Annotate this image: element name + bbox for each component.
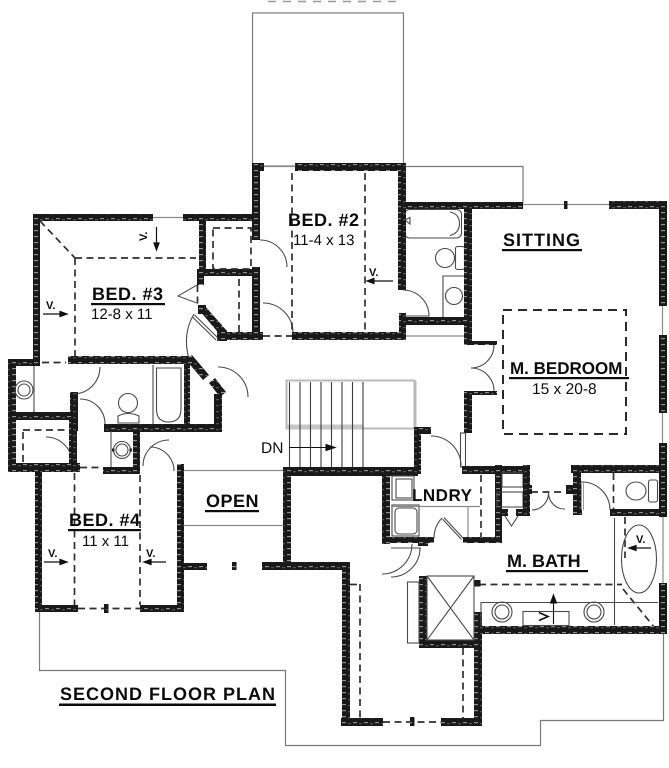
svg-text:V.: V. <box>146 548 155 560</box>
svg-text:11 x 11: 11 x 11 <box>82 533 129 550</box>
svg-text:V.: V. <box>369 267 378 279</box>
svg-text:DN: DN <box>261 440 283 457</box>
svg-text:12-8 x 11: 12-8 x 11 <box>91 306 152 323</box>
svg-text:OPEN: OPEN <box>206 491 259 511</box>
svg-text:LNDRY: LNDRY <box>412 486 473 505</box>
svg-text:11-4 x 13: 11-4 x 13 <box>293 232 354 249</box>
svg-text:SITTING: SITTING <box>503 230 581 250</box>
svg-text:V.: V. <box>48 548 57 560</box>
svg-text:SECOND FLOOR PLAN: SECOND FLOOR PLAN <box>60 684 276 704</box>
svg-text:BED. #4: BED. #4 <box>69 510 141 530</box>
svg-text:BED. #2: BED. #2 <box>288 210 360 230</box>
svg-text:BED. #3: BED. #3 <box>92 284 164 304</box>
svg-text:15 x 20-8: 15 x 20-8 <box>532 381 597 398</box>
svg-text:V.: V. <box>46 300 55 312</box>
svg-text:M. BATH: M. BATH <box>507 551 581 571</box>
svg-text:M. BEDROOM: M. BEDROOM <box>510 359 622 378</box>
svg-text:V.: V. <box>636 534 645 546</box>
svg-text:V.: V. <box>138 232 150 241</box>
